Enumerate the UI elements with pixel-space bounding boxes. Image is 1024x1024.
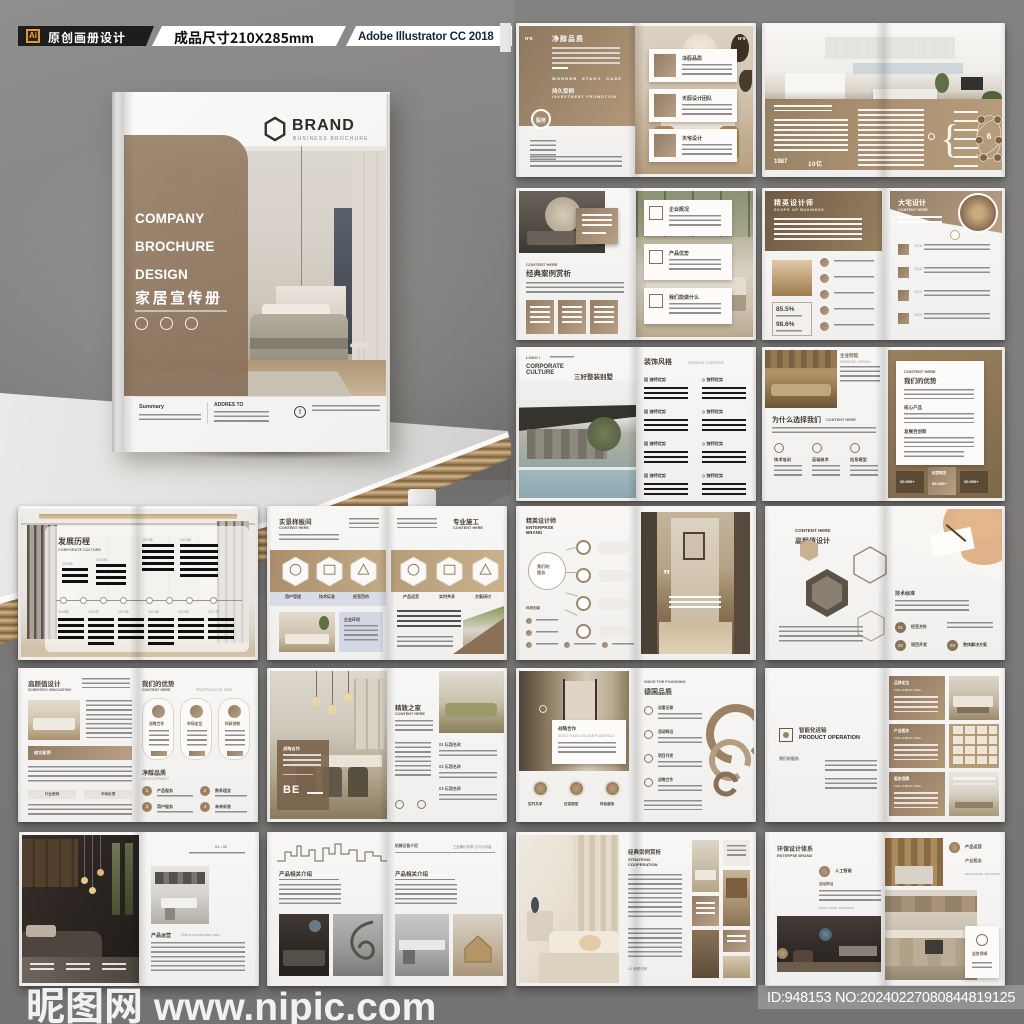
svg-text:6: 6 bbox=[987, 131, 992, 141]
